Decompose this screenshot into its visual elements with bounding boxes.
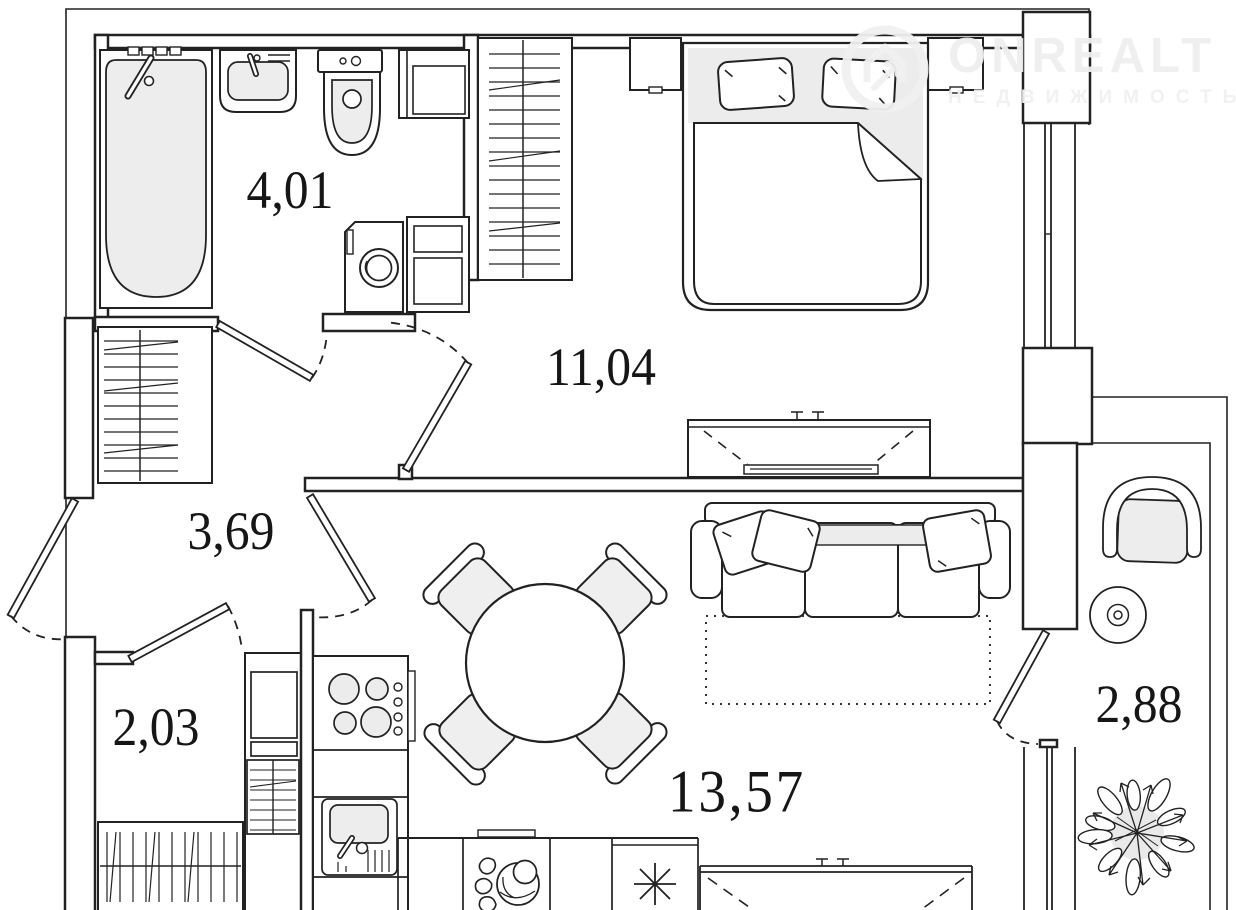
area-label-bathroom: 4,01 (247, 159, 334, 221)
hallway-wardrobe (98, 327, 212, 483)
sofa (691, 503, 1010, 617)
double-bed (683, 43, 928, 310)
tv-stand-bedroom (688, 412, 930, 477)
kitchen-tall-unit (245, 653, 301, 910)
walls (65, 12, 1092, 910)
bedroom-door (384, 322, 471, 472)
balcony-door (994, 630, 1049, 744)
bedroom-window (1024, 123, 1075, 348)
area-label-kitchen-living: 13,57 (668, 758, 806, 827)
dining-set (420, 540, 671, 789)
nightstand-left (630, 38, 681, 93)
entrance-door (8, 498, 78, 639)
dining-table (466, 584, 624, 742)
pillow (717, 57, 794, 110)
hob-symbol-icon (634, 863, 676, 905)
area-label-balcony: 2,88 (1096, 673, 1183, 735)
toilet (318, 50, 382, 155)
balcony-armchair (1103, 477, 1201, 563)
washing-machine (345, 222, 403, 312)
bathtub (100, 47, 212, 308)
area-label-bedroom: 11,04 (546, 336, 656, 398)
potted-plant (1078, 776, 1196, 896)
rug (706, 616, 990, 704)
kitchen-sink (322, 799, 397, 875)
balcony-window (1024, 747, 1075, 910)
area-label-closet: 2,03 (113, 696, 200, 758)
bathroom-sink (220, 50, 296, 112)
sofa-pillow (922, 509, 992, 573)
kitchen-counter (313, 656, 415, 910)
bathroom-cabinet (399, 50, 469, 312)
nightstand-right (928, 38, 983, 93)
tv-stand-living (700, 859, 972, 910)
closet-wardrobe (98, 822, 243, 910)
kitchen-door (307, 494, 375, 617)
floor-plan: 4,01 11,04 3,69 2,03 13,57 2,88 ONREALT … (0, 0, 1236, 910)
bedroom-wardrobe (478, 38, 572, 280)
dishes (474, 856, 539, 910)
balcony-table (1090, 587, 1146, 643)
bottom-counter (398, 830, 698, 910)
closet-door (128, 603, 242, 662)
floor-plan-drawing (0, 0, 1236, 910)
bathroom-door (216, 321, 327, 381)
pillow (822, 58, 896, 110)
area-label-hallway: 3,69 (188, 500, 275, 562)
